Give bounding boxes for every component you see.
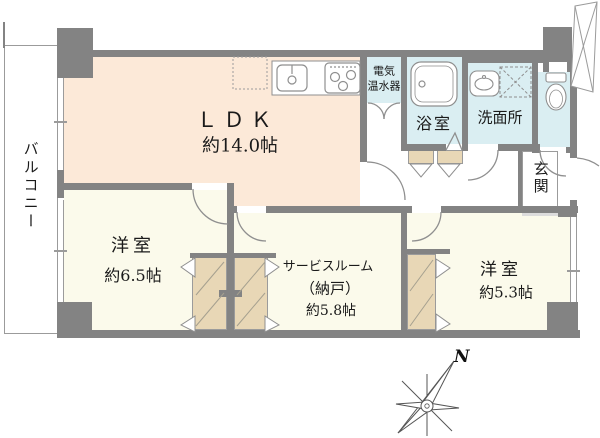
bedroom53-label: 洋室 <box>480 261 522 281</box>
floor-plan: バルコニー <box>0 0 600 438</box>
bifold-door-bathroom <box>446 133 462 150</box>
door-arc-service <box>237 212 266 241</box>
toilet-icon <box>546 73 566 110</box>
closet53-door-mark-bottom <box>436 314 450 332</box>
storage-door-mark-2 <box>438 164 460 177</box>
closet65-door-mark-bottom <box>181 316 195 332</box>
compass-north-label: N <box>453 347 471 367</box>
service-room-label: サービスルーム <box>283 261 374 276</box>
door-arc-bedroom53 <box>412 212 441 241</box>
closet53-door-mark-top <box>436 259 450 278</box>
ldk-label: ＬＤＫ <box>197 108 278 132</box>
service-room-size-label: 約5.8帖 <box>306 303 356 319</box>
door-arc-ldk-hall <box>367 162 405 200</box>
water-heater-label-1: 電気 <box>373 66 395 79</box>
bedroom53-size-label: 約5.3帖 <box>479 284 533 301</box>
ldk-size-label: 約14.0帖 <box>202 137 278 158</box>
washroom-label: 洗面所 <box>477 109 522 126</box>
door-arc-heater-right <box>384 103 400 119</box>
door-arc-heater-left <box>368 103 384 119</box>
entrance-label: 玄関 <box>531 161 548 195</box>
linework-overlay: N <box>0 0 600 438</box>
refrigerator-space-icon <box>233 57 267 89</box>
door-arc-washroom <box>468 150 498 180</box>
adjacent-unit-hatch <box>571 2 597 92</box>
washing-machine-icon <box>500 67 531 97</box>
bathtub-icon <box>411 62 457 106</box>
door-arc-entrance <box>577 158 599 166</box>
water-heater-label-2: 温水器 <box>368 81 401 94</box>
kitchen-sink-icon <box>277 65 307 91</box>
vanity-sink-icon <box>470 71 499 96</box>
closet-service-door-mark-bottom <box>265 316 279 332</box>
bedroom65-size-label: 約6.5帖 <box>104 267 161 285</box>
door-arc-bedroom65 <box>193 189 228 224</box>
closet-service-door-mark-top <box>265 258 279 277</box>
closet65-door-mark-top <box>181 258 195 277</box>
bathroom-label: 浴室 <box>416 115 452 133</box>
service-room-label-2: （納戸） <box>300 280 360 297</box>
bedroom65-label: 洋室 <box>111 237 155 258</box>
stove-icon <box>325 63 360 93</box>
storage-door-mark-1 <box>410 164 432 177</box>
compass-rose: N <box>396 347 471 436</box>
